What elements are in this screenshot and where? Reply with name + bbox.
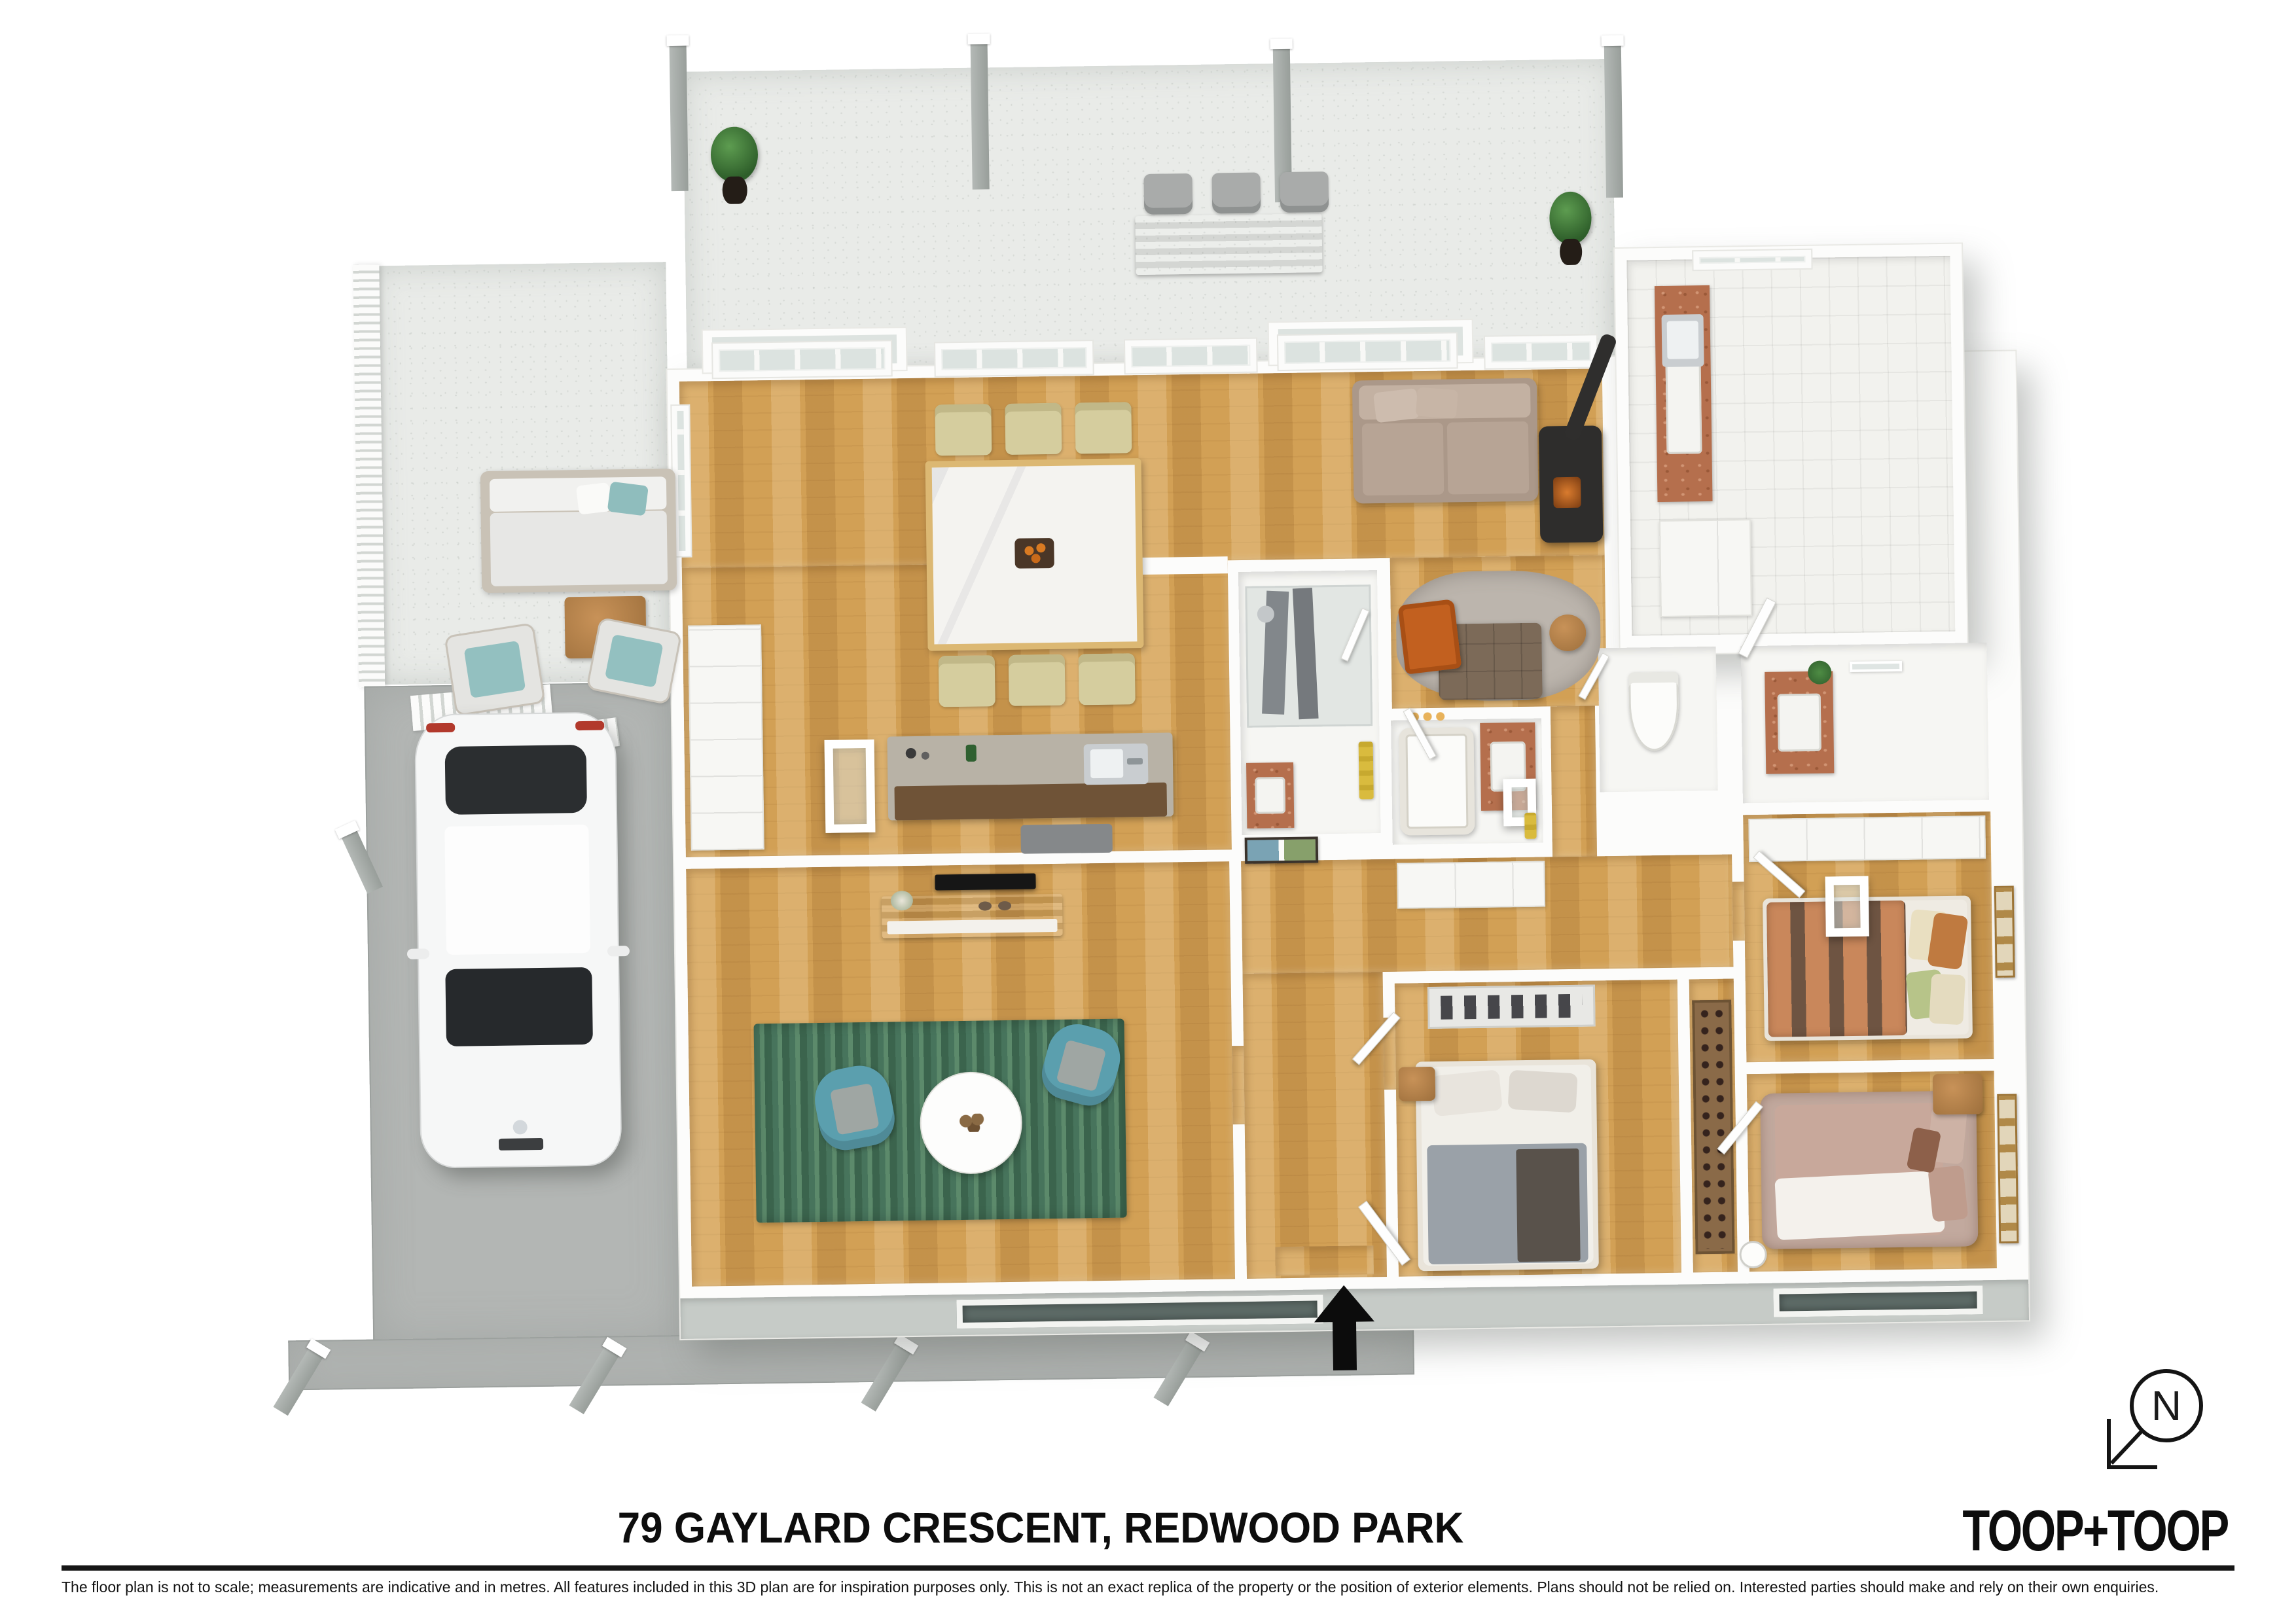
shower-room-vanity [1246,762,1294,829]
dining-chair-2 [1005,403,1062,455]
kitchen-island [887,732,1174,820]
b3-pillow-2 [1507,1070,1577,1113]
sink-basin [1090,749,1124,779]
m-pillow-2 [1928,1165,1968,1222]
car-tail-light-left [426,723,455,733]
car [416,713,621,1167]
accent-chair-orange [1397,599,1462,674]
patio-plant-1 [708,126,761,204]
window-bay-right-glass [1278,333,1457,370]
bedroom3-nightstand [1399,1067,1436,1101]
patio-bench [1135,213,1322,275]
hall-link-floor [1551,705,1597,857]
entry-threshold [1275,1245,1374,1275]
tv [935,873,1035,890]
linen-closet [1397,861,1545,909]
outdoor-pillow-white [576,482,612,515]
m-sheet [1774,1171,1945,1240]
pergola-post-2 [971,43,990,189]
bedroom2-wardrobe [1748,815,1986,862]
outdoor-sofa [480,469,677,593]
outdoor-sofa-seat [490,510,668,586]
island-cabinet-base [894,783,1167,821]
sofa-seat-right [1447,421,1530,495]
dining-chair-1 [935,404,992,455]
dining-chair-3 [1075,402,1132,454]
car-mirror-left [407,948,429,959]
footer-divider [62,1565,2234,1571]
pergola-post-1 [670,45,689,191]
living-sofa [1352,378,1539,504]
disclaimer-text: The floor plan is not to scale; measurem… [62,1578,2241,1596]
patio-plant-2 [1547,191,1594,265]
dining-table [925,458,1144,651]
bedroom3-bed [1415,1059,1598,1271]
b2-pillow-cream-2 [1929,974,1965,1026]
floor-plan-canvas [0,0,2296,1442]
page: { "meta": { "title": "79 GAYLARD CRESCEN… [0,0,2296,1623]
laundry-bench [1655,285,1713,502]
dining-fruit-3 [1031,554,1041,563]
skylight-frame-kitchen [824,740,875,833]
bathtub [1399,727,1475,836]
decor-bowl-2 [998,901,1011,910]
b3-pillow-1 [1431,1069,1503,1116]
patio-stool-2 [1211,173,1261,214]
dining-chair-5 [1009,654,1066,706]
pergola-post-4 [1604,45,1623,198]
decor-flowers [891,891,913,910]
laundry-sink-basin [1667,321,1699,359]
shower-panel-2 [1293,588,1319,719]
window-top-3 [1485,335,1597,368]
laundry-window [1693,250,1811,270]
master-nightstand [1933,1073,1983,1115]
laundry-sink [1662,314,1704,367]
outdoor-pillow-teal [607,482,649,516]
window-top-2 [1125,339,1257,374]
entrance-arrow [1314,1285,1375,1370]
laundry-cabinet [1659,519,1752,617]
page-title: 79 GAYLARD CRESCENT, REDWOOD PARK [112,1503,1970,1552]
sofa-seat-left [1362,423,1444,496]
entry-hall-floor [1243,972,1387,1279]
car-grille [499,1138,543,1150]
window-top-1 [935,341,1093,376]
brand-logo: TOOP+TOOP [1962,1497,2228,1564]
bedroom2-picture-wall [1994,886,2015,978]
north-arrow-shaft [2111,1431,2142,1463]
car-rear-window [445,745,587,815]
dining-chair-6 [1079,653,1136,705]
wine-rack [1692,1000,1734,1255]
kitchen-wall-cabinets [688,624,764,851]
shower-enclosure [1245,584,1372,728]
powder-vanity [1765,671,1834,774]
patio-stool-1 [1143,173,1193,215]
outdoor-chair-1 [446,625,543,715]
tv-sideboard [882,894,1063,938]
car-tail-light-right [575,721,604,731]
doorway-hall-bedroom2 [1732,882,1745,940]
tv-sideboard-drawers [887,919,1057,935]
master-gallery-wall [1997,1094,2018,1243]
powder-plant [1808,660,1831,684]
sink-tap [1127,758,1143,764]
b3-runner [1516,1149,1580,1262]
wood-stove [1539,425,1603,543]
window-bottom-lounge [956,1294,1323,1329]
dining-chair-4 [939,655,996,707]
island-prop-1 [906,748,916,758]
north-arrow-icon: N [2081,1355,2238,1512]
window-bay-left-glass [713,341,891,378]
shoe-rack [1427,984,1596,1029]
car-roof [444,825,590,955]
skylight-frame-bedroom2 [1825,876,1869,937]
patio-stool-3 [1280,171,1329,213]
decor-bowl-1 [978,901,992,910]
hall-picture-frames [1245,836,1319,864]
car-badge [513,1120,528,1134]
car-mirror-right [607,946,630,956]
island-prop-2 [922,752,929,760]
powder-mirror [1850,661,1902,672]
sofa-cushion-2 [1416,387,1458,419]
dining-fruit [1024,546,1033,555]
island-herb-pot [966,745,977,762]
island-sink [1084,743,1149,785]
sofa-cushion-1 [1373,388,1420,423]
table-props [959,1114,985,1133]
north-letter: N [2151,1382,2181,1429]
car-windshield [445,967,593,1046]
doorway-lounge-hall [1232,1046,1245,1124]
window-bottom-master [1773,1285,1983,1317]
dining-centerpiece [1014,538,1054,569]
towel-rail-2 [1524,813,1537,839]
towel-rail-1 [1359,741,1374,799]
kitchen-bench-seat [1020,824,1113,854]
